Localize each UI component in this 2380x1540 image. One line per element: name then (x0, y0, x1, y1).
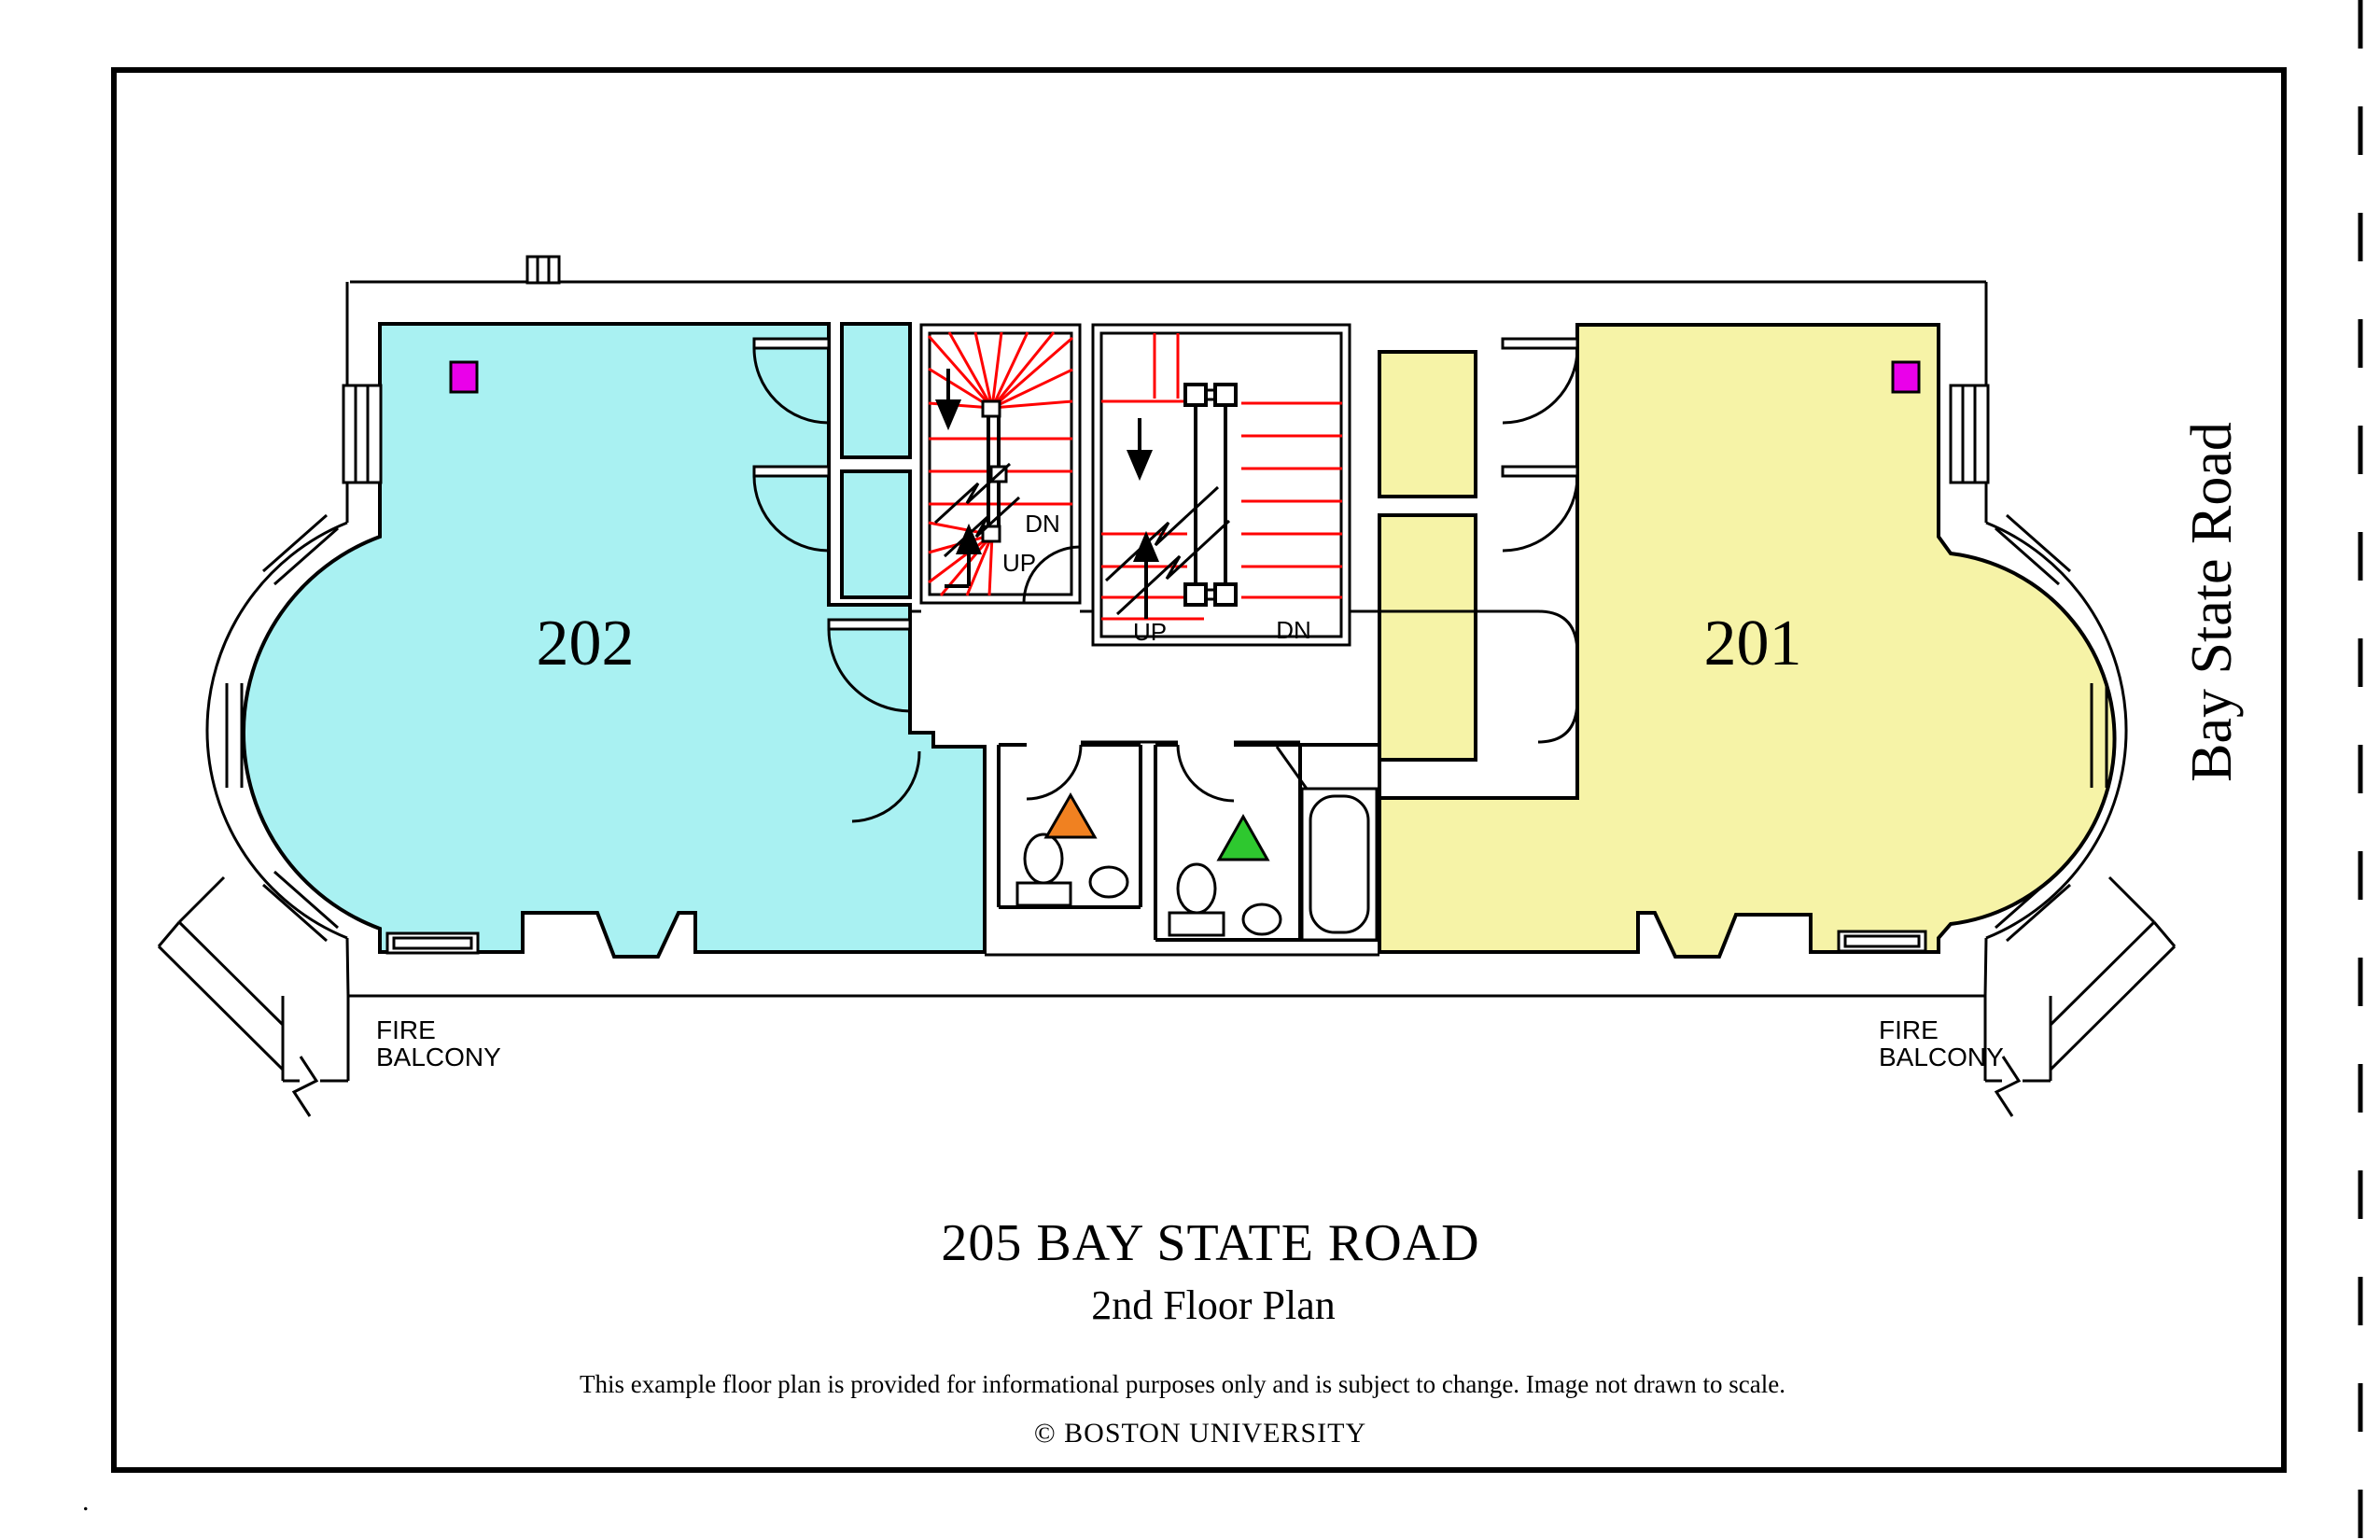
room-202-closet-lower (842, 471, 910, 597)
room-201-closet-lower (1379, 515, 1476, 760)
page-subtitle: 2nd Floor Plan (1091, 1282, 1336, 1328)
hall-corner-arc (1538, 700, 1577, 742)
room-201-closet-upper (1379, 352, 1476, 497)
room-202-closet-upper (842, 324, 910, 457)
room-201-label: 201 (1704, 608, 1802, 679)
window-201-bottom (1839, 931, 1925, 951)
wall-joint (1985, 938, 1986, 996)
window-202-bottom (387, 933, 478, 953)
window-left-wall (343, 385, 381, 483)
bathrooms (999, 745, 1379, 940)
door-bathroom-left (1027, 745, 1081, 799)
toilet-tank-icon (1017, 883, 1071, 905)
bathroom-left (999, 745, 1141, 907)
fire-balcony-left-label-2: BALCONY (376, 1043, 501, 1071)
fire-balcony-right-label-2: BALCONY (1879, 1043, 2004, 1071)
page-title: 205 BAY STATE ROAD (941, 1214, 1479, 1272)
door-201-closet-lower (1503, 467, 1577, 551)
wall-joint (347, 938, 348, 996)
disclaimer-text: This example floor plan is provided for … (580, 1370, 1785, 1398)
toilet-icon (1025, 834, 1062, 883)
copyright-text: © BOSTON UNIVERSITY (1034, 1418, 1366, 1449)
toilet-icon (1178, 864, 1215, 913)
orange-triangle-marker (1046, 795, 1095, 837)
chimney (527, 257, 559, 283)
magenta-square-marker-201 (1893, 362, 1919, 392)
sink-icon (1090, 867, 1127, 897)
bathtub-icon (1310, 796, 1368, 932)
green-triangle-marker (1219, 817, 1267, 860)
stair-left-up-label: UP (1002, 549, 1036, 577)
shower-door-line (1277, 747, 1307, 789)
floor-plan-canvas: DN UP (0, 0, 2380, 1540)
stairwell-right: UP DN (1093, 325, 1350, 646)
break-line-icon (294, 1057, 316, 1116)
bathtub-area (1277, 745, 1379, 940)
fire-balcony-left-label-1: FIRE (376, 1015, 436, 1044)
stairwell-left: DN UP (921, 325, 1080, 603)
bathroom-right (1155, 745, 1379, 940)
hall-corner-arc (1538, 611, 1577, 653)
corner-dot: . (82, 1486, 90, 1517)
stair-right-dn-label: DN (1276, 616, 1311, 644)
fire-balcony-right-label-1: FIRE (1879, 1015, 1939, 1044)
stair-left-dn-label: DN (1025, 510, 1060, 538)
toilet-tank-icon (1169, 913, 1224, 935)
floor-plan-page: DN UP (0, 0, 2380, 1540)
room-202-label: 202 (537, 608, 635, 679)
magenta-square-marker-202 (451, 362, 477, 392)
door-bathroom-right (1178, 745, 1234, 801)
window-right-wall (1951, 385, 1988, 483)
stair-right-up-label: UP (1133, 618, 1167, 646)
street-label: Bay State Road (2180, 422, 2244, 782)
door-201-closet-upper (1503, 339, 1577, 423)
sink-icon (1243, 904, 1281, 934)
